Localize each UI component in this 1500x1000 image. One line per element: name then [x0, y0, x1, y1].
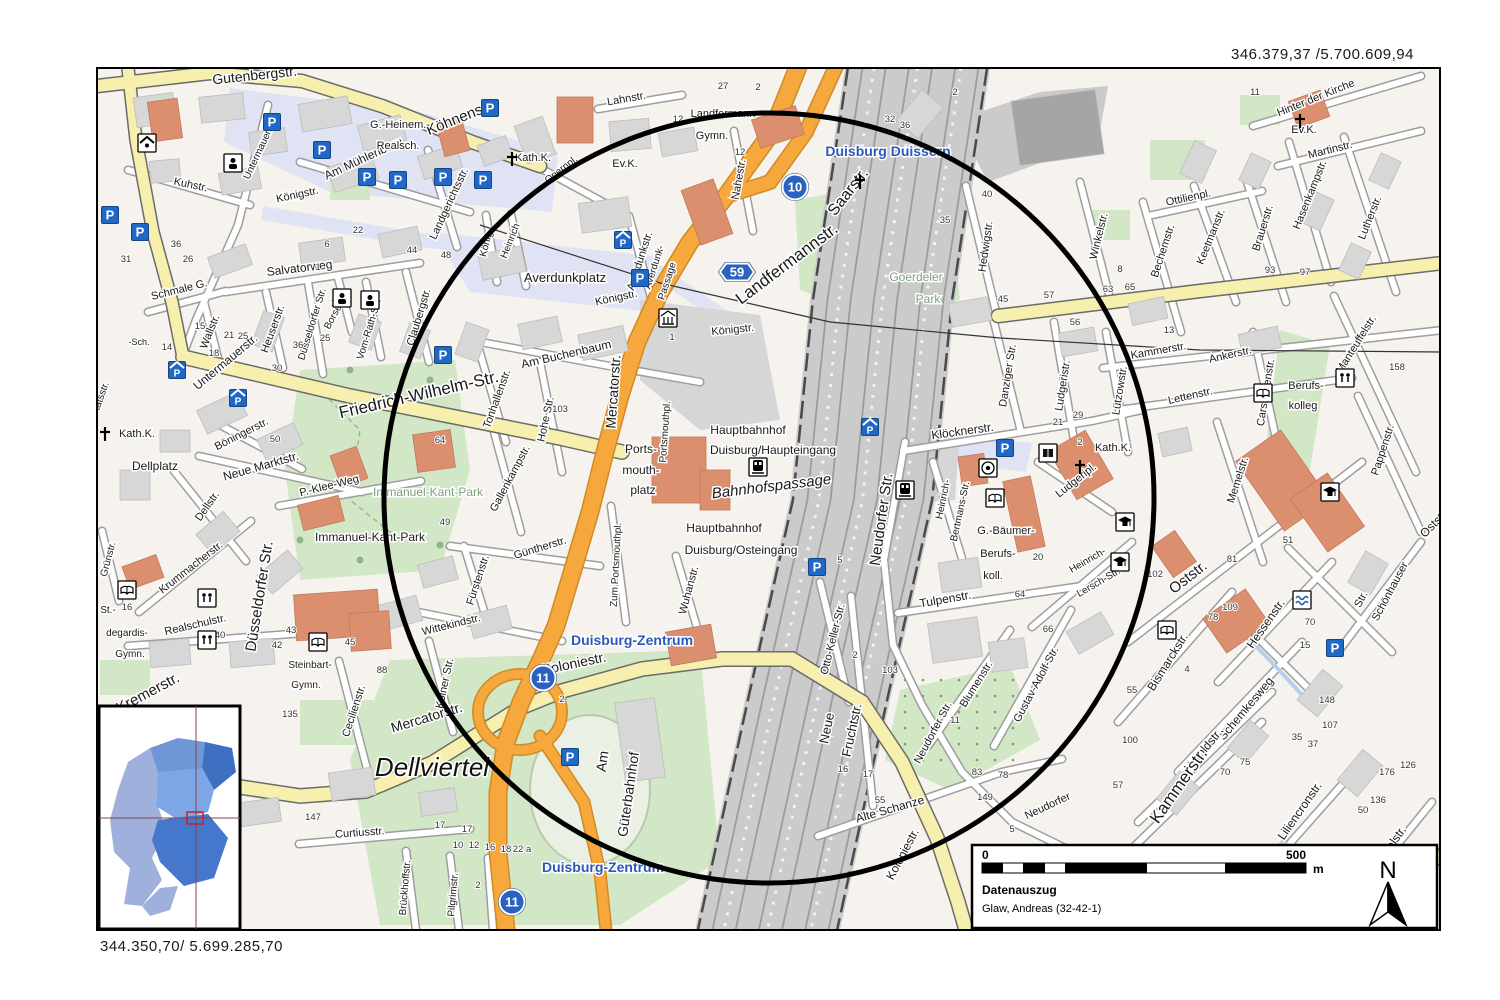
house-number: 21: [224, 330, 235, 341]
parking-icon: P: [390, 172, 407, 189]
svg-text:P: P: [106, 208, 115, 223]
house-number: 48: [441, 250, 452, 261]
inset-overview-map[interactable]: [99, 706, 240, 929]
person-icon: [361, 291, 379, 309]
house-number: 11: [1250, 87, 1260, 98]
map-document: { "page": { "coordinates_top_right": "34…: [0, 0, 1500, 1000]
street-label: Immanuel-Kant-Park: [373, 485, 484, 499]
house-number: 93: [1265, 265, 1276, 276]
house-number: 17: [863, 769, 874, 780]
route-badge-11: 11: [529, 664, 557, 692]
house-number: 22 a: [513, 844, 532, 855]
house-number: 107: [1322, 720, 1338, 731]
house-number: 70: [1220, 767, 1231, 778]
train-icon: [896, 481, 914, 499]
house-number: 17: [435, 820, 446, 831]
route-badge-10: 10: [781, 173, 809, 201]
parking-icon: P: [475, 172, 492, 189]
house-number: 49: [440, 517, 451, 528]
svg-text:11: 11: [505, 895, 519, 910]
parking-icon: P: [1327, 640, 1344, 657]
parking-icon: P: [132, 224, 149, 241]
house-number: 51: [1283, 535, 1294, 546]
grad-cap-icon: [1111, 553, 1129, 571]
house-number: 81: [1227, 554, 1238, 565]
house-number: 18: [209, 348, 220, 359]
house-number: 14: [162, 342, 173, 353]
house-number: 35: [1292, 732, 1303, 743]
house-number: 31: [121, 254, 132, 265]
svg-text:10: 10: [788, 180, 802, 195]
house-number: 88: [377, 665, 388, 676]
book-dark-icon: [1039, 444, 1057, 462]
house-number: 65: [1125, 282, 1136, 293]
person-icon: [333, 289, 351, 307]
svg-text:P: P: [174, 369, 181, 380]
house-number: 78: [998, 770, 1009, 781]
svg-text:59: 59: [730, 265, 744, 280]
house-number: 16: [122, 602, 133, 613]
house-number: 2: [559, 694, 564, 705]
house-number: 57: [1113, 780, 1124, 791]
svg-text:P: P: [394, 173, 403, 188]
house-number: 2: [755, 82, 760, 93]
svg-text:P: P: [439, 170, 448, 185]
svg-text:P: P: [235, 397, 242, 408]
house-number: 25: [320, 333, 331, 344]
street-label: Berufs-: [1288, 380, 1324, 392]
svg-text:P: P: [813, 560, 822, 575]
motorway-badge-59: 59: [718, 262, 756, 282]
house-number: 25: [238, 331, 249, 342]
street-label: mouth-: [622, 463, 659, 477]
train-icon: [749, 458, 767, 476]
house-number: 55: [875, 795, 886, 806]
house-number: 36: [900, 120, 911, 131]
scale-end-label: 500: [1286, 848, 1306, 862]
parking-icon: P: [359, 169, 376, 186]
figures-icon: [198, 589, 216, 607]
svg-text:P: P: [363, 170, 372, 185]
street-label: Hauptbahnhof: [710, 423, 786, 437]
house-number: 15: [1300, 640, 1311, 651]
street-label: Kath.K.: [1095, 442, 1131, 454]
street-label: Dellplatz: [132, 459, 178, 473]
house-number: 147: [305, 812, 321, 823]
house-number: 1: [315, 262, 320, 273]
waves-icon: [1293, 591, 1311, 609]
street-label: Park: [916, 292, 942, 306]
house-number: 64: [1015, 589, 1026, 600]
house-number: 8: [1117, 264, 1122, 275]
soccer-icon: [979, 459, 997, 477]
street-label: Dellviertel: [375, 752, 490, 782]
parking-icon: P: [632, 270, 649, 287]
house-number: 36: [171, 239, 182, 250]
house-number: 26: [183, 254, 194, 265]
street-label: Ports-: [625, 442, 657, 456]
street-label: G.-Heinem.-: [370, 119, 430, 131]
house-number: 10: [453, 840, 464, 851]
street-label: -Sch.: [128, 337, 149, 347]
parking-icon: P: [264, 114, 281, 131]
parking-icon: P: [435, 347, 452, 364]
house-number: 5: [1009, 824, 1014, 835]
grad-cap-icon: [1321, 483, 1339, 501]
house-number: 18: [501, 844, 512, 855]
street-label: Ev.K.: [612, 158, 637, 170]
svg-text:P: P: [1331, 641, 1340, 656]
house-number: 42: [272, 640, 283, 651]
street-label: Hauptbahnhof: [686, 521, 762, 535]
museum-icon: [659, 309, 677, 327]
house-number: 75: [1240, 757, 1251, 768]
house-number: 11: [950, 715, 960, 726]
map-content: Gutenbergstr.Köhnenstr.Am MühlenbergG.-H…: [91, 62, 1451, 930]
house-number: 15: [195, 321, 206, 332]
street-label: Gymn.: [115, 649, 144, 660]
house-number: 2: [1077, 437, 1082, 448]
house-number: 66: [1043, 624, 1054, 635]
house-number: 22: [353, 225, 364, 236]
svg-text:11: 11: [536, 671, 550, 686]
street-label: Gymn.: [696, 130, 728, 142]
legend-title: Datenauszug: [982, 883, 1057, 897]
house-number: 27: [718, 81, 729, 92]
house-number: 45: [345, 637, 356, 648]
street-label: Kath.K.: [515, 152, 551, 164]
house-number: 32: [885, 114, 896, 125]
house-number: 50: [1358, 805, 1369, 816]
street-label: Duisburg/Osteingang: [685, 543, 798, 557]
route-badge-11: 11: [498, 888, 526, 916]
svg-text:P: P: [1001, 441, 1010, 456]
house-number: 63: [1103, 284, 1114, 295]
legend-author: Glaw, Andreas (32-42-1): [982, 903, 1101, 915]
book-icon: [309, 633, 327, 651]
street-label: degardis-: [106, 628, 148, 639]
house-number: 56: [1070, 317, 1081, 328]
parking-garage-icon: P: [169, 362, 186, 380]
house-number: 17: [462, 824, 473, 835]
street-label: Goerdeler: [889, 270, 942, 284]
house-number: 2: [952, 87, 957, 98]
street-label: kolleg: [1289, 400, 1318, 412]
person-icon: [224, 154, 242, 172]
house-number: 13: [1164, 325, 1175, 336]
street-label: Steinbart-: [288, 660, 331, 671]
home-icon: [138, 134, 156, 152]
house-number: 16: [838, 764, 849, 775]
svg-text:P: P: [479, 173, 488, 188]
svg-text:P: P: [867, 426, 874, 437]
street-label: Ev.K.: [1291, 124, 1316, 136]
street-label: St.-: [100, 605, 116, 616]
house-number: 12: [735, 147, 746, 158]
scale-unit-label: m: [1313, 862, 1324, 876]
house-number: 5: [837, 555, 842, 566]
house-number: 6: [324, 239, 329, 250]
house-number: 148: [1319, 695, 1335, 706]
parking-garage-icon: P: [862, 419, 879, 437]
book-icon: [1254, 384, 1272, 402]
street-label: G.-Bäumer-: [977, 525, 1035, 537]
house-number: 135: [282, 709, 298, 720]
street-label: Gymn.: [291, 680, 320, 691]
house-number: 55: [1127, 685, 1138, 696]
house-number: 21: [1053, 417, 1064, 428]
house-number: 29: [1073, 410, 1084, 421]
svg-text:P: P: [486, 101, 495, 116]
house-number: 57: [1044, 290, 1055, 301]
figures-icon: [198, 631, 216, 649]
house-number: 1: [669, 332, 674, 343]
parking-icon: P: [809, 559, 826, 576]
scale-start-label: 0: [982, 848, 989, 862]
house-number: 136: [1370, 795, 1386, 806]
house-number: 44: [407, 245, 418, 256]
parking-icon: P: [102, 207, 119, 224]
house-number: 103: [552, 404, 568, 415]
house-number: 20: [1033, 552, 1044, 563]
house-number: 83: [972, 767, 983, 778]
svg-text:P: P: [566, 750, 575, 765]
house-number: 97: [1300, 267, 1311, 278]
house-number: 4: [1184, 664, 1189, 675]
street-label: Kath.K.: [119, 428, 155, 440]
legend-box: 0500mDatenauszugGlaw, Andreas (32-42-1)N: [972, 845, 1437, 928]
house-number: 64: [435, 435, 446, 446]
house-number: 37: [1308, 739, 1319, 750]
svg-text:P: P: [636, 271, 645, 286]
parking-icon: P: [562, 749, 579, 766]
house-number: 2: [852, 650, 857, 661]
street-label: Immanuel-Kant-Park: [315, 530, 426, 544]
house-number: 100: [1122, 735, 1138, 746]
house-number: 103: [882, 665, 898, 676]
parking-icon: P: [997, 440, 1014, 457]
book-icon: [118, 581, 136, 599]
street-label: platz: [630, 483, 655, 497]
street-label: Realsch.: [377, 140, 420, 152]
street-label: Averdunkplatz: [524, 270, 606, 285]
street-label: Duisburg/Haupteingang: [710, 443, 836, 457]
svg-text:P: P: [620, 239, 627, 250]
house-number: 126: [1400, 760, 1416, 771]
house-number: 43: [286, 625, 297, 636]
svg-text:P: P: [136, 225, 145, 240]
house-number: 149: [977, 792, 993, 803]
parking-garage-icon: P: [615, 232, 632, 250]
street-label: Duisburg-Zentrum: [571, 632, 693, 648]
house-number: 50: [270, 434, 281, 445]
house-number: 30: [272, 363, 283, 374]
street-label: Am: [593, 750, 612, 773]
house-number: 36: [293, 340, 304, 351]
house-number: 40: [982, 189, 993, 200]
book-icon: [986, 489, 1004, 507]
house-number: 45: [998, 294, 1009, 305]
parking-icon: P: [314, 142, 331, 159]
house-number: 12: [469, 840, 480, 851]
book-icon: [1158, 621, 1176, 639]
house-number: 158: [1389, 362, 1405, 373]
house-number: 16: [485, 842, 496, 853]
house-number: 2: [475, 880, 480, 891]
grad-cap-icon: [1116, 513, 1134, 531]
svg-text:P: P: [268, 115, 277, 130]
house-number: 78: [1208, 612, 1219, 623]
parking-icon: P: [482, 100, 499, 117]
svg-text:P: P: [318, 143, 327, 158]
house-number: 176: [1379, 767, 1395, 778]
parking-icon: P: [435, 169, 452, 186]
house-number: 109: [1222, 602, 1238, 613]
parking-garage-icon: P: [230, 390, 247, 408]
figures-icon: [1336, 369, 1354, 387]
north-label: N: [1379, 857, 1396, 884]
street-label: koll.: [983, 570, 1003, 582]
map-canvas[interactable]: Gutenbergstr.Köhnenstr.Am MühlenbergG.-H…: [0, 0, 1500, 1000]
house-number: 35: [940, 215, 951, 226]
street-label: Berufs-: [980, 548, 1016, 560]
svg-text:P: P: [439, 348, 448, 363]
house-number: 70: [1305, 617, 1316, 628]
